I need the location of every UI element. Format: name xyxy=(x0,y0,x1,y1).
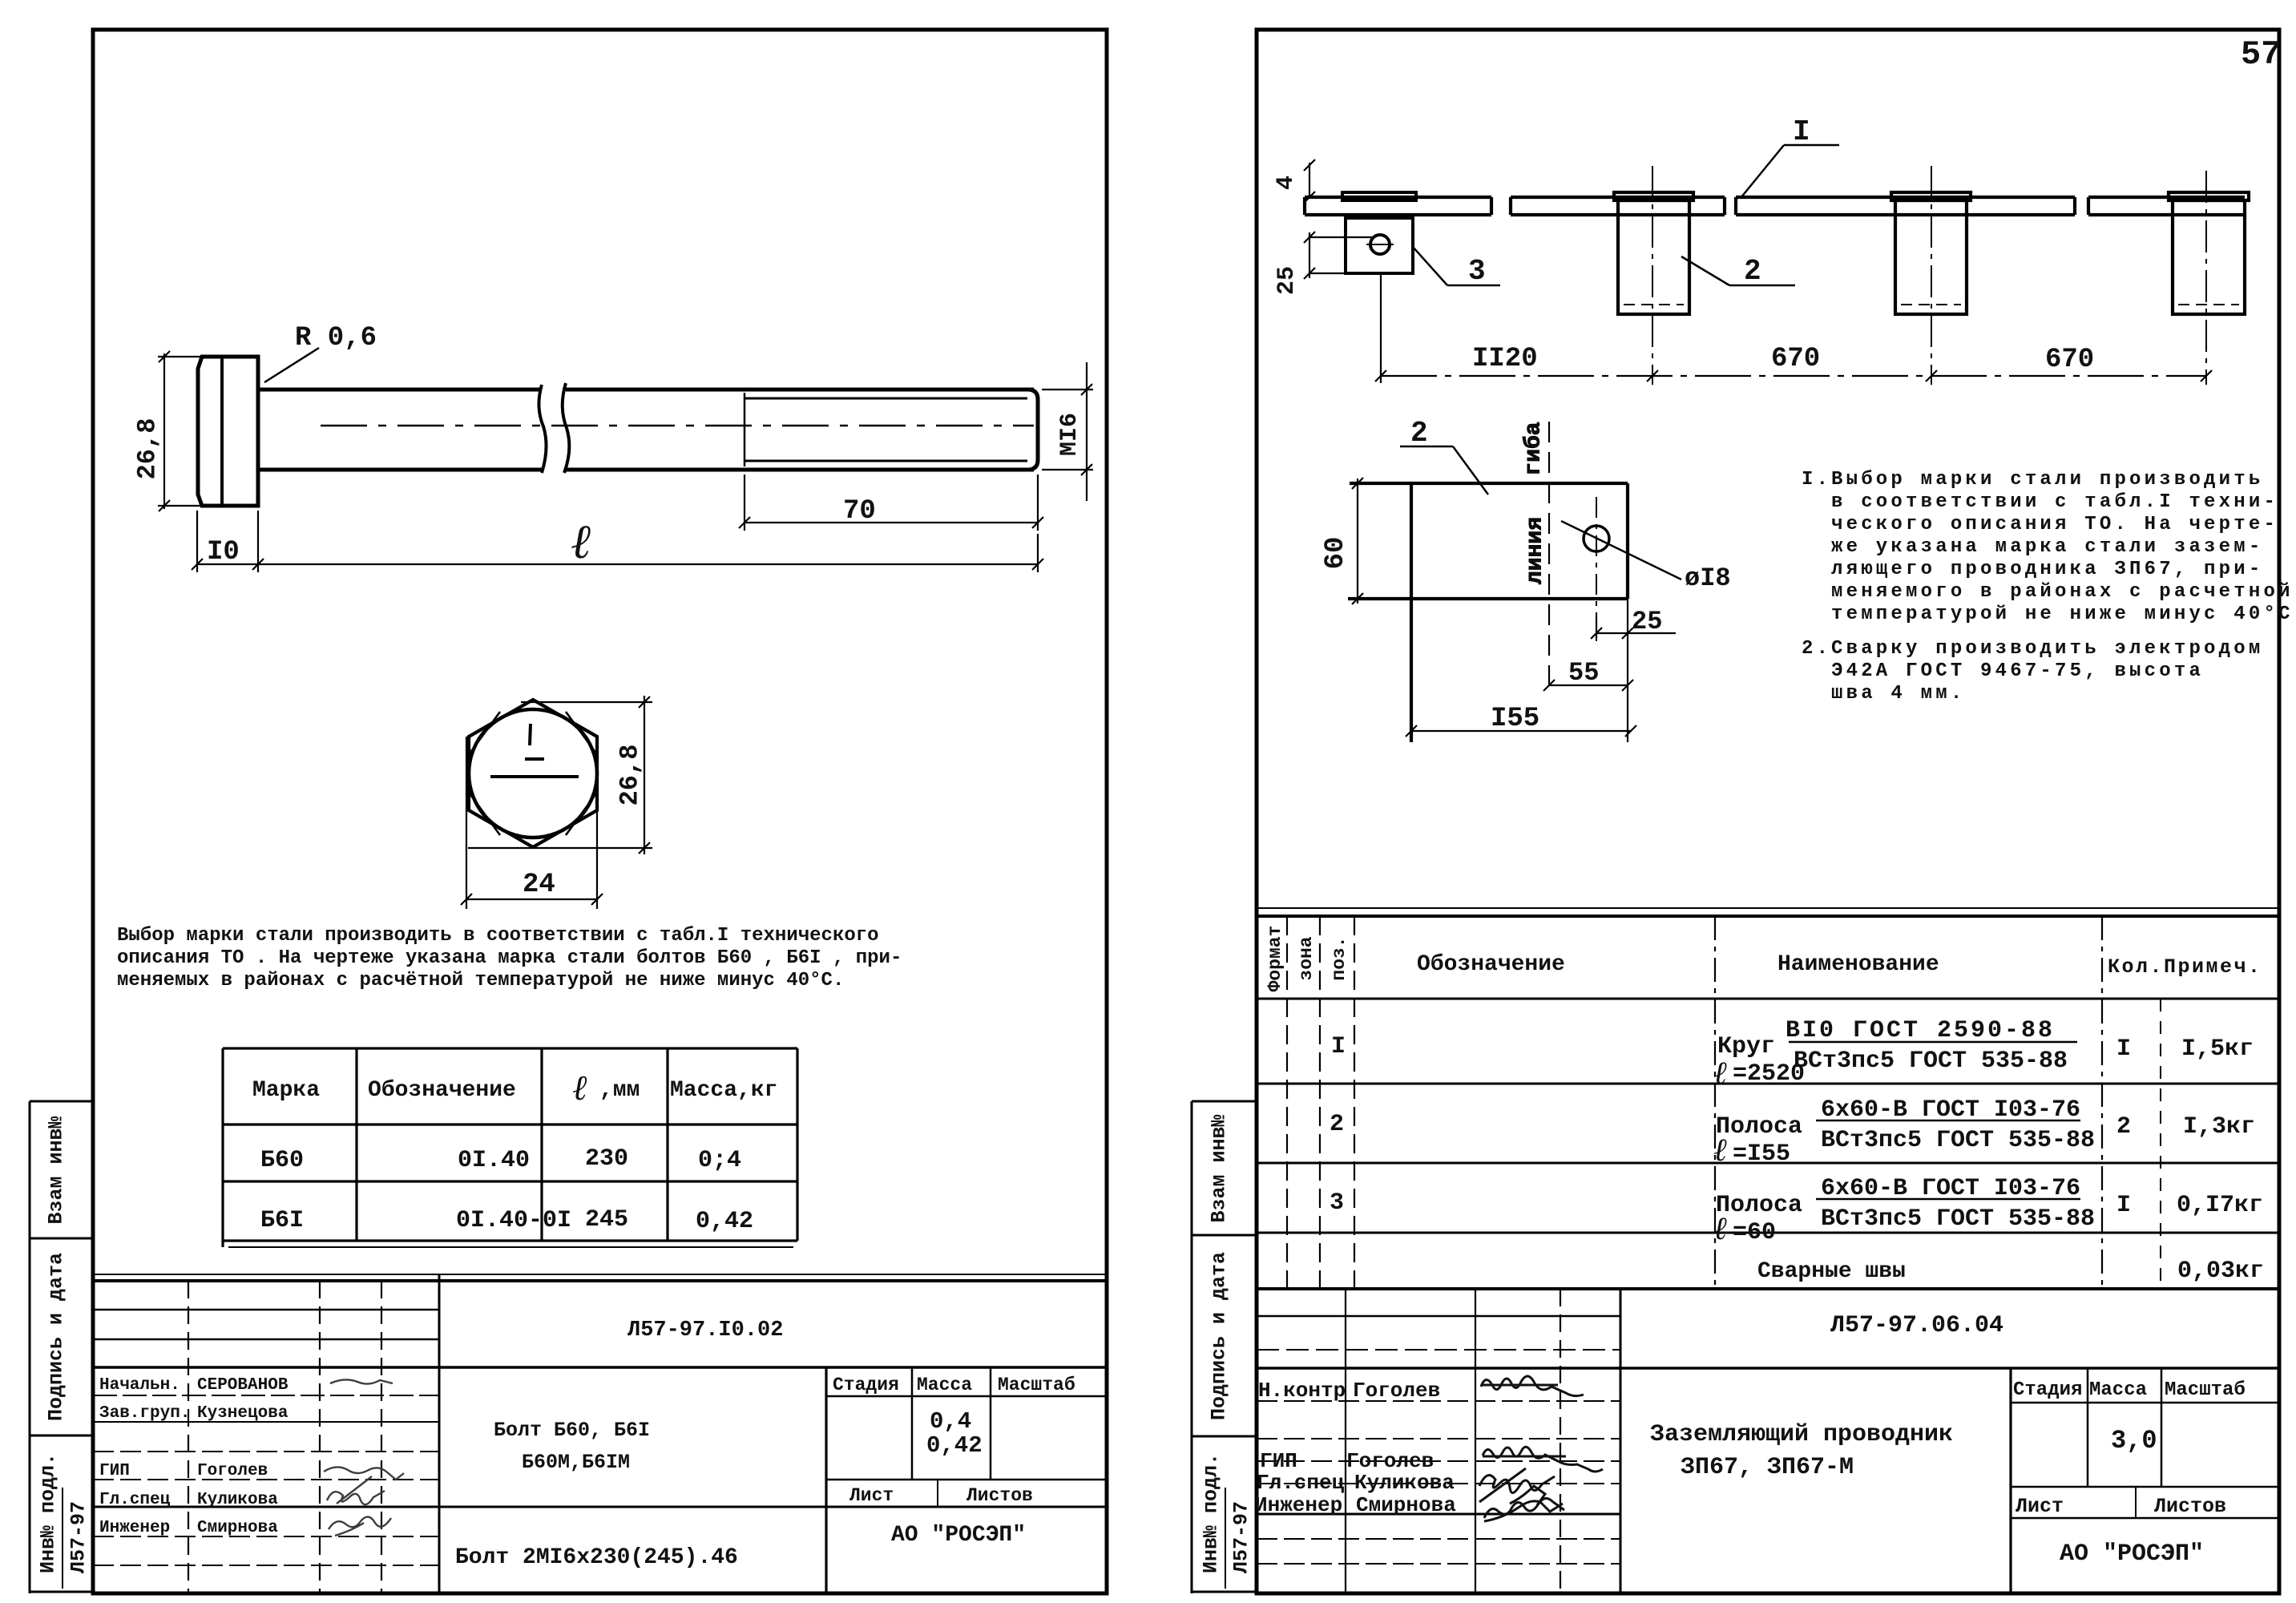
svg-text:230: 230 xyxy=(585,1145,628,1173)
svg-text:шва 4 мм.: шва 4 мм. xyxy=(1831,683,1965,705)
svg-text:Начальн.: Начальн. xyxy=(99,1376,180,1395)
svg-text:Гоголев: Гоголев xyxy=(1346,1449,1434,1473)
svg-text:Смирнова: Смирнова xyxy=(1356,1493,1456,1517)
svg-text:в соответствии с табл.I техни-: в соответствии с табл.I техни- xyxy=(1831,491,2278,513)
svg-text:зона: зона xyxy=(1296,936,1317,980)
svg-text:0,42: 0,42 xyxy=(926,1432,983,1459)
svg-text:АО "РОСЭП": АО "РОСЭП" xyxy=(2060,1540,2204,1568)
svg-text:0I.40: 0I.40 xyxy=(458,1147,530,1174)
svg-text:меняемого в районах с расчетно: меняемого в районах с расчетной xyxy=(1831,581,2294,603)
svg-text:Масса,кг: Масса,кг xyxy=(670,1078,777,1103)
svg-text:Лист: Лист xyxy=(2016,1495,2064,1518)
svg-text:4: 4 xyxy=(1273,176,1300,190)
svg-text:Б6I: Б6I xyxy=(260,1207,304,1234)
svg-text:Лист: Лист xyxy=(849,1485,894,1506)
svg-text:Б60М,Б6IМ: Б60М,Б6IМ xyxy=(522,1451,630,1474)
svg-text:0,42: 0,42 xyxy=(696,1208,753,1235)
svg-text:Инв№ подл.: Инв№ подл. xyxy=(1200,1453,1223,1573)
svg-text:Н.контр: Н.контр xyxy=(1258,1379,1346,1403)
svg-text:25: 25 xyxy=(1632,607,1662,636)
svg-text:ℓ: ℓ xyxy=(1713,1132,1727,1168)
svg-text:Формат: Формат xyxy=(1265,926,1285,992)
svg-text:температурой не ниже минус 40°: температурой не ниже минус 40°С. xyxy=(1831,604,2296,625)
svg-text:=60: =60 xyxy=(1733,1219,1776,1246)
svg-text:670: 670 xyxy=(2045,345,2094,375)
svg-text:ляющего проводника ЗП67, при-: ляющего проводника ЗП67, при- xyxy=(1831,559,2263,580)
svg-text:I.: I. xyxy=(1802,469,1831,491)
svg-text:поз.: поз. xyxy=(1329,936,1350,980)
svg-text:ВСт3пс5 ГОСТ 535-88: ВСт3пс5 ГОСТ 535-88 xyxy=(1821,1205,2095,1233)
svg-text:I55: I55 xyxy=(1491,704,1539,734)
svg-text:,мм: ,мм xyxy=(599,1078,640,1103)
svg-text:670: 670 xyxy=(1771,344,1820,374)
svg-text:=2520: =2520 xyxy=(1733,1060,1805,1088)
svg-text:26,8: 26,8 xyxy=(615,745,644,806)
svg-text:Гоголев: Гоголев xyxy=(1353,1379,1440,1403)
svg-text:Инв№ подл.: Инв№ подл. xyxy=(37,1453,60,1573)
svg-text:Б60: Б60 xyxy=(260,1147,304,1174)
svg-text:3: 3 xyxy=(1330,1189,1344,1217)
svg-text:0I.40-0I: 0I.40-0I xyxy=(456,1207,571,1234)
svg-text:меняемых в районах с расчётной: меняемых в районах с расчётной температу… xyxy=(117,970,844,991)
svg-text:же указана марка стали зазем-: же указана марка стали зазем- xyxy=(1831,536,2263,558)
svg-text:R 0,6: R 0,6 xyxy=(295,323,377,353)
svg-text:ЗП67, ЗП67-М: ЗП67, ЗП67-М xyxy=(1681,1454,1854,1481)
svg-text:Масштаб: Масштаб xyxy=(998,1375,1075,1395)
svg-text:Кол.Примеч.: Кол.Примеч. xyxy=(2108,955,2262,979)
svg-text:57: 57 xyxy=(2241,35,2281,74)
svg-text:Выбор марки стали производить: Выбор марки стали производить в соответс… xyxy=(117,925,879,947)
svg-text:55: 55 xyxy=(1568,658,1599,688)
svg-text:Э42А ГОСТ 9467-75, высота: Э42А ГОСТ 9467-75, высота xyxy=(1831,660,2204,682)
svg-text:Л57-97: Л57-97 xyxy=(1230,1501,1253,1573)
svg-text:245: 245 xyxy=(585,1206,628,1234)
svg-text:Масса: Масса xyxy=(2089,1379,2147,1401)
svg-text:ℓ: ℓ xyxy=(1713,1055,1727,1091)
svg-text:Гл.спец: Гл.спец xyxy=(99,1491,171,1509)
svg-text:Наименование: Наименование xyxy=(1777,952,1939,977)
svg-text:Куликова: Куликова xyxy=(197,1491,278,1509)
svg-text:Болт Б60, Б6I: Болт Б60, Б6I xyxy=(494,1419,650,1442)
svg-text:I: I xyxy=(1793,115,1810,148)
svg-text:60: 60 xyxy=(1321,537,1351,570)
svg-text:линия: линия xyxy=(1523,517,1547,584)
svg-text:Л57-97.06.04: Л57-97.06.04 xyxy=(1830,1312,2003,1339)
svg-text:Подпись и дата: Подпись и дата xyxy=(1208,1252,1231,1420)
svg-text:2: 2 xyxy=(1744,255,1761,288)
svg-text:Кузнецова: Кузнецова xyxy=(197,1404,289,1423)
svg-text:ГИП: ГИП xyxy=(1260,1449,1297,1473)
svg-text:0,03кг: 0,03кг xyxy=(2177,1258,2264,1285)
svg-text:Гоголев: Гоголев xyxy=(197,1462,268,1480)
svg-text:Масса: Масса xyxy=(917,1375,972,1395)
svg-text:ℓ: ℓ xyxy=(572,1068,587,1108)
svg-text:Масштаб: Масштаб xyxy=(2165,1379,2246,1401)
svg-text:СЕРОВАНОВ: СЕРОВАНОВ xyxy=(197,1376,289,1395)
svg-text:I: I xyxy=(1331,1033,1346,1060)
svg-text:Сварные швы: Сварные швы xyxy=(1757,1259,1906,1284)
svg-text:ческого описания ТО. На черте-: ческого описания ТО. На черте- xyxy=(1831,514,2278,535)
svg-text:Марка: Марка xyxy=(252,1078,320,1103)
svg-text:I,5кг: I,5кг xyxy=(2181,1036,2254,1063)
svg-text:ВСт3пс5 ГОСТ 535-88: ВСт3пс5 ГОСТ 535-88 xyxy=(1794,1048,2068,1075)
svg-text:24: 24 xyxy=(523,870,555,900)
svg-text:25: 25 xyxy=(1273,266,1301,295)
svg-text:=I55: =I55 xyxy=(1733,1141,1790,1168)
svg-text:Обозначение: Обозначение xyxy=(1417,952,1565,977)
svg-text:I: I xyxy=(2116,1192,2131,1219)
svg-text:Взам инв№: Взам инв№ xyxy=(45,1116,68,1224)
svg-text:Л57-97: Л57-97 xyxy=(67,1501,91,1573)
svg-text:Гл.спец: Гл.спец xyxy=(1257,1471,1345,1495)
svg-text:0,4: 0,4 xyxy=(930,1408,971,1435)
svg-text:2: 2 xyxy=(2116,1113,2131,1141)
svg-text:øI8: øI8 xyxy=(1685,563,1731,593)
svg-text:II20: II20 xyxy=(1472,344,1538,374)
svg-text:ГИП: ГИП xyxy=(99,1462,130,1480)
svg-text:Листов: Листов xyxy=(2154,1495,2226,1518)
svg-text:Листов: Листов xyxy=(966,1485,1033,1506)
svg-text:26,8: 26,8 xyxy=(132,418,162,480)
svg-text:описания ТО . На чертеже указа: описания ТО . На чертеже указана марка с… xyxy=(117,947,902,969)
svg-text:Смирнова: Смирнова xyxy=(197,1519,278,1537)
svg-text:АО "РОСЭП": АО "РОСЭП" xyxy=(891,1523,1026,1548)
svg-text:BI0 ГОСТ 2590-88: BI0 ГОСТ 2590-88 xyxy=(1786,1017,2055,1044)
svg-text:Полоса: Полоса xyxy=(1716,1113,1802,1141)
svg-text:2.: 2. xyxy=(1802,638,1831,660)
svg-text:Стадия: Стадия xyxy=(833,1375,899,1395)
svg-text:Подпись и дата: Подпись и дата xyxy=(45,1253,68,1421)
svg-text:70: 70 xyxy=(843,496,876,527)
svg-text:2: 2 xyxy=(1410,417,1428,450)
svg-text:0;4: 0;4 xyxy=(698,1147,741,1174)
svg-text:гиба: гиба xyxy=(1521,422,1546,475)
svg-text:Обозначение: Обозначение xyxy=(368,1078,516,1103)
svg-text:Инженер: Инженер xyxy=(99,1519,170,1537)
svg-text:Сварку производить электродом: Сварку производить электродом xyxy=(1831,638,2263,660)
svg-text:Выбор марки стали производить: Выбор марки стали производить xyxy=(1831,469,2263,491)
svg-text:Куликова: Куликова xyxy=(1354,1471,1455,1495)
svg-text:Заземляющий проводник: Заземляющий проводник xyxy=(1650,1421,1953,1448)
svg-text:ℓ: ℓ xyxy=(1713,1210,1727,1246)
svg-text:Полоса: Полоса xyxy=(1716,1192,1802,1219)
svg-text:ВСт3пс5 ГОСТ 535-88: ВСт3пс5 ГОСТ 535-88 xyxy=(1821,1127,2095,1154)
svg-text:3: 3 xyxy=(1468,255,1486,288)
svg-text:Л57-97.I0.02: Л57-97.I0.02 xyxy=(627,1318,783,1343)
svg-text:Зав.груп.: Зав.груп. xyxy=(99,1404,190,1423)
svg-text:I0: I0 xyxy=(207,537,240,567)
svg-text:0,I7кг: 0,I7кг xyxy=(2177,1192,2263,1219)
svg-text:MI6: MI6 xyxy=(1056,413,1083,456)
svg-text:I: I xyxy=(2116,1036,2131,1063)
svg-text:Инженер: Инженер xyxy=(1255,1493,1342,1517)
svg-text:I,3кг: I,3кг xyxy=(2183,1113,2255,1141)
svg-text:3,0: 3,0 xyxy=(2111,1426,2157,1456)
svg-text:Взам инв№: Взам инв№ xyxy=(1208,1114,1231,1222)
svg-text:ℓ: ℓ xyxy=(571,515,591,568)
svg-text:Стадия: Стадия xyxy=(2013,1379,2082,1401)
svg-text:Болт 2МI6х230(245).46: Болт 2МI6х230(245).46 xyxy=(455,1545,738,1570)
svg-text:2: 2 xyxy=(1330,1111,1344,1138)
